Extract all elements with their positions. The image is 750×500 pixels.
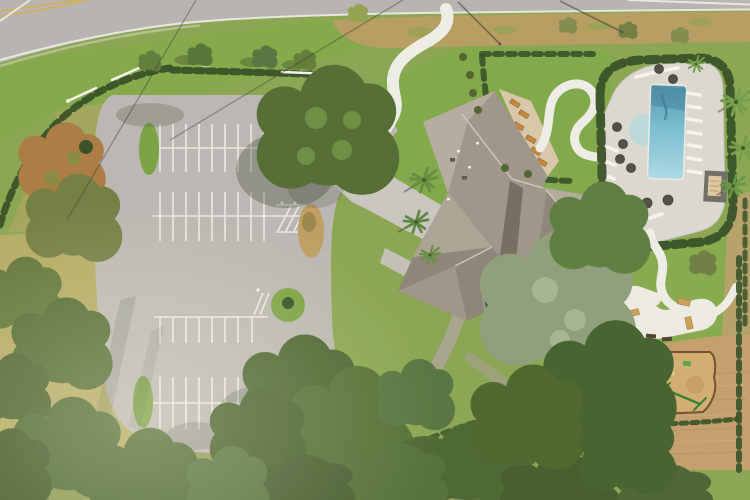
aerial-photo [0, 0, 750, 500]
aerial-photo-canvas [0, 0, 750, 500]
haze-overlay [0, 0, 750, 500]
